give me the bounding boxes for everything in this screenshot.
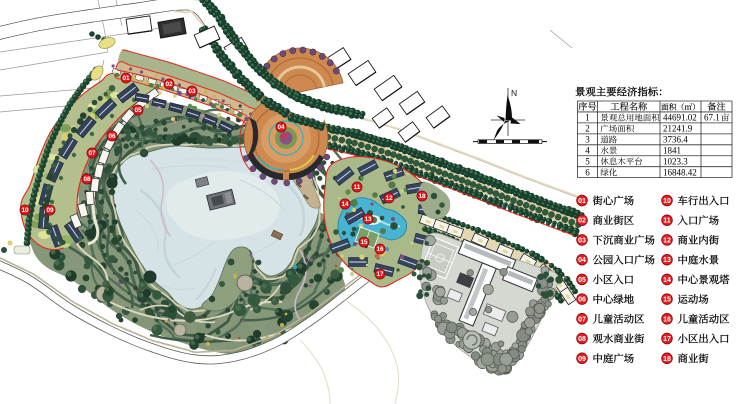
svg-text:03: 03 [188, 88, 196, 95]
svg-text:05: 05 [578, 277, 586, 284]
svg-text:01: 01 [122, 75, 130, 82]
svg-text:08: 08 [578, 336, 586, 343]
svg-text:04: 04 [277, 124, 285, 131]
svg-text:2: 2 [585, 124, 590, 134]
svg-text:11: 11 [354, 184, 361, 191]
svg-text:16: 16 [663, 316, 671, 323]
svg-text:10: 10 [21, 207, 29, 214]
svg-text:17: 17 [376, 271, 384, 278]
svg-text:12: 12 [663, 237, 671, 244]
svg-text:02: 02 [578, 218, 586, 225]
svg-text:09: 09 [578, 356, 586, 363]
svg-text:1841: 1841 [663, 146, 681, 156]
svg-text:15: 15 [663, 297, 671, 304]
svg-text:44691.02: 44691.02 [663, 113, 697, 123]
svg-text:4: 4 [585, 146, 590, 156]
svg-text:18: 18 [418, 193, 426, 200]
svg-text:1: 1 [585, 113, 590, 123]
svg-text:03: 03 [578, 237, 586, 244]
svg-text:16: 16 [376, 246, 384, 253]
svg-text:08: 08 [83, 176, 91, 183]
svg-text:3: 3 [585, 135, 590, 145]
svg-text:02: 02 [165, 81, 173, 88]
svg-text:11: 11 [663, 218, 671, 225]
svg-text:3736.4: 3736.4 [663, 135, 688, 145]
svg-text:09: 09 [46, 207, 54, 214]
svg-text:13: 13 [663, 257, 671, 264]
svg-text:14: 14 [663, 277, 671, 284]
svg-text:18: 18 [663, 356, 671, 363]
svg-text:1023.3: 1023.3 [663, 157, 688, 167]
svg-text:06: 06 [108, 133, 116, 140]
svg-text:67.1: 67.1 [704, 113, 720, 123]
svg-text:10: 10 [663, 198, 671, 205]
svg-text:14: 14 [341, 201, 349, 208]
svg-text:01: 01 [578, 198, 586, 205]
svg-text:07: 07 [578, 316, 586, 323]
svg-text:12: 12 [385, 195, 393, 202]
svg-text:05: 05 [134, 107, 142, 114]
svg-text:15: 15 [360, 239, 368, 246]
svg-text:6: 6 [585, 168, 590, 178]
svg-text:17: 17 [663, 336, 671, 343]
svg-text:04: 04 [578, 257, 586, 264]
svg-text:16848.42: 16848.42 [663, 168, 697, 178]
svg-text:5: 5 [585, 157, 590, 167]
svg-text:N: N [511, 88, 517, 98]
svg-text:06: 06 [578, 297, 586, 304]
svg-text:21241.9: 21241.9 [663, 124, 693, 134]
svg-text:13: 13 [364, 216, 372, 223]
svg-text:07: 07 [88, 150, 96, 157]
